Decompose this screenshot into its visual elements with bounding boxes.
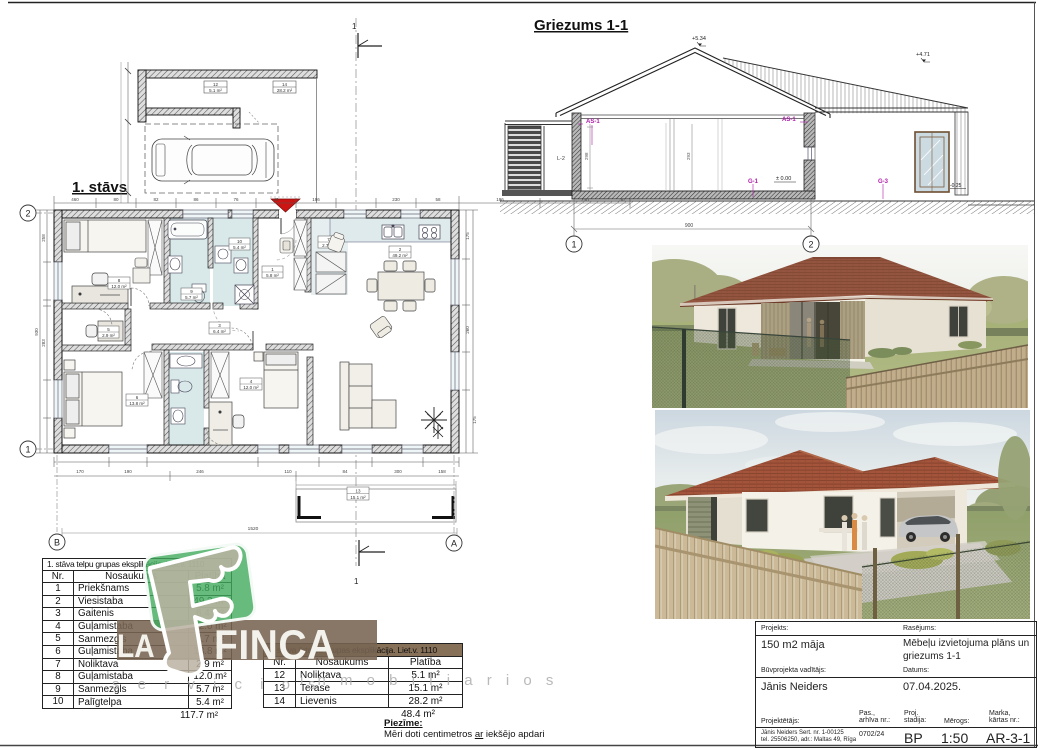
svg-text:49.2 m²: 49.2 m² <box>392 253 408 258</box>
svg-text:AS-1: AS-1 <box>586 119 600 125</box>
svg-text:300: 300 <box>394 469 402 474</box>
svg-text:6.4 m²: 6.4 m² <box>213 329 226 334</box>
svg-text:L-2: L-2 <box>557 156 565 162</box>
svg-text:190: 190 <box>124 469 132 474</box>
svg-text:175: 175 <box>465 232 470 240</box>
svg-text:13.8 m²: 13.8 m² <box>129 401 145 406</box>
svg-text:40: 40 <box>273 197 279 202</box>
svg-text:B: B <box>54 538 60 548</box>
svg-text:1520: 1520 <box>248 526 259 532</box>
svg-text:1: 1 <box>571 240 576 250</box>
svg-text:196: 196 <box>312 197 320 202</box>
svg-text:12.0 m²: 12.0 m² <box>111 284 127 289</box>
svg-text:1: 1 <box>25 445 30 455</box>
svg-text:+4.71: +4.71 <box>916 52 930 58</box>
svg-text:12: 12 <box>213 82 219 87</box>
svg-text:5.1 m²: 5.1 m² <box>209 88 222 93</box>
svg-text:5.7 m²: 5.7 m² <box>185 295 198 300</box>
svg-text:Griezums 1-1: Griezums 1-1 <box>534 17 628 34</box>
svg-text:12.0 m²: 12.0 m² <box>243 385 259 390</box>
svg-text:10: 10 <box>237 239 243 244</box>
svg-text:82: 82 <box>153 197 159 202</box>
svg-text:258: 258 <box>41 234 46 242</box>
svg-text:230: 230 <box>392 197 400 202</box>
svg-text:260: 260 <box>465 326 470 334</box>
svg-text:930: 930 <box>34 328 39 336</box>
svg-text:1: 1 <box>352 22 357 31</box>
svg-text:58: 58 <box>435 197 441 202</box>
svg-text:2.9 m²: 2.9 m² <box>102 333 115 338</box>
svg-text:14: 14 <box>282 82 288 87</box>
svg-text:298: 298 <box>584 152 589 160</box>
svg-text:+5.34: +5.34 <box>692 36 706 42</box>
svg-text:-0.25: -0.25 <box>950 183 962 189</box>
svg-text:5.4 m²: 5.4 m² <box>233 245 246 250</box>
svg-text:158: 158 <box>438 469 446 474</box>
svg-text:80: 80 <box>113 197 119 202</box>
svg-text:G-1: G-1 <box>748 179 759 185</box>
svg-text:1: 1 <box>354 577 359 586</box>
svg-text:2: 2 <box>25 209 30 219</box>
svg-text:246: 246 <box>196 469 204 474</box>
svg-text:G-3: G-3 <box>878 179 889 185</box>
svg-text:170: 170 <box>76 469 84 474</box>
svg-text:110: 110 <box>284 469 292 474</box>
svg-text:5.8 m²: 5.8 m² <box>266 273 279 278</box>
svg-text:28.2 m²: 28.2 m² <box>277 88 293 93</box>
svg-text:175: 175 <box>472 416 477 424</box>
svg-text:460: 460 <box>71 197 79 202</box>
svg-text:86: 86 <box>193 197 199 202</box>
svg-text:2: 2 <box>808 240 813 250</box>
svg-text:AS-1: AS-1 <box>782 117 796 123</box>
svg-text:76: 76 <box>233 197 239 202</box>
svg-text:84: 84 <box>342 469 348 474</box>
svg-text:293: 293 <box>686 152 691 160</box>
svg-text:1. stāvs: 1. stāvs <box>72 179 127 196</box>
svg-text:13: 13 <box>355 489 361 494</box>
svg-text:900: 900 <box>685 223 694 229</box>
svg-text:283: 283 <box>41 339 46 347</box>
svg-text:15.1 m²: 15.1 m² <box>350 495 366 500</box>
svg-text:± 0.00: ± 0.00 <box>776 176 791 182</box>
svg-text:A: A <box>451 539 457 549</box>
